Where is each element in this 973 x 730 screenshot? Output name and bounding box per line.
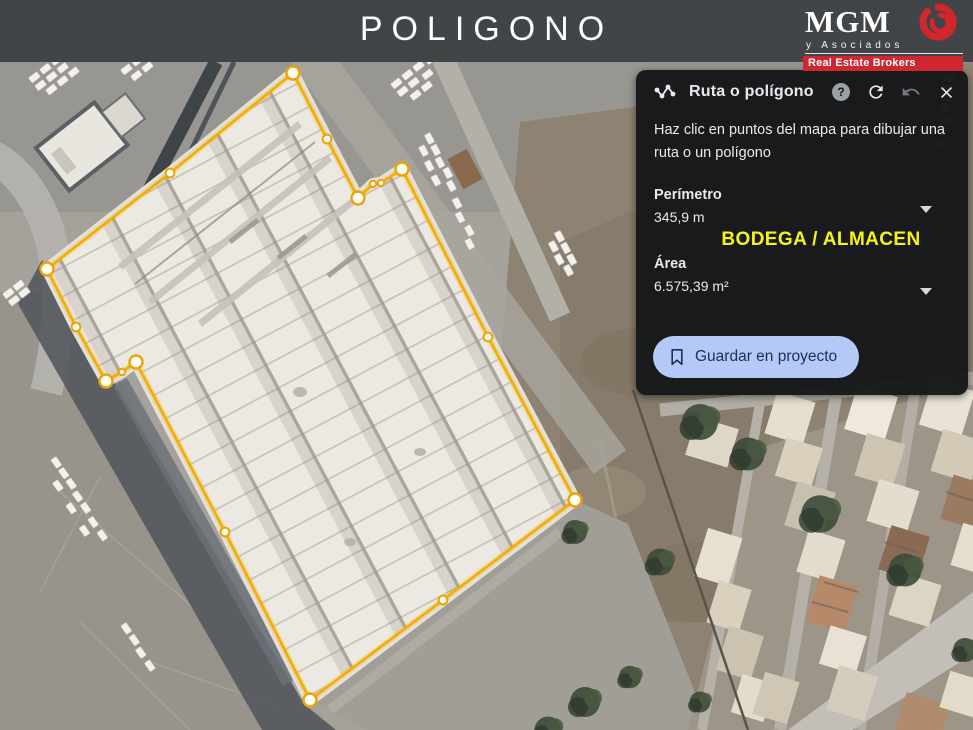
save-to-project-button[interactable]: Guardar en proyecto	[653, 336, 859, 378]
logo-swirl-icon	[919, 3, 957, 41]
help-icon[interactable]: ?	[831, 82, 851, 102]
perimeter-metric: Perímetro 345,9 m	[636, 187, 968, 225]
perimeter-value: 345,9 m	[654, 209, 950, 225]
chevron-down-icon[interactable]	[920, 288, 932, 295]
area-value: 6.575,39 m²	[654, 278, 950, 294]
polygon-vertex[interactable]	[166, 169, 175, 178]
close-icon[interactable]	[936, 82, 956, 102]
bookmark-icon	[669, 348, 685, 366]
undo-icon[interactable]	[901, 82, 921, 102]
chevron-down-icon[interactable]	[920, 206, 932, 213]
redo-icon[interactable]	[866, 82, 886, 102]
logo-wordmark: MGM	[805, 5, 891, 39]
area-metric: Área 6.575,39 m²	[636, 256, 968, 294]
polygon-vertex[interactable]	[304, 694, 317, 707]
polygon-vertex[interactable]	[130, 356, 143, 369]
panel-header: Ruta o polígono ?	[636, 70, 968, 102]
panel-title: Ruta o polígono	[689, 83, 816, 101]
polygon-vertex[interactable]	[484, 333, 493, 342]
polygon-vertex[interactable]	[569, 494, 582, 507]
measure-panel: Ruta o polígono ? Haz clic en puntos del…	[636, 70, 968, 395]
polygon-vertex[interactable]	[352, 192, 365, 205]
brand-logo: MGM y Asociados Real Estate Brokers	[803, 5, 963, 71]
logo-subtitle: y Asociados	[806, 40, 963, 51]
perimeter-label: Perímetro	[654, 187, 950, 203]
polygon-vertex[interactable]	[72, 323, 81, 332]
route-icon	[654, 83, 676, 101]
polygon-vertex[interactable]	[323, 135, 332, 144]
polygon-vertex[interactable]	[378, 180, 384, 186]
screenshot-root: POLIGONO MGM y Asociados Real Estate Bro…	[0, 0, 973, 730]
polygon-vertex[interactable]	[370, 181, 376, 187]
polygon-vertex[interactable]	[287, 67, 300, 80]
polygon-vertex[interactable]	[100, 375, 113, 388]
area-label: Área	[654, 256, 950, 272]
save-button-label: Guardar en proyecto	[695, 348, 837, 366]
polygon-vertex[interactable]	[439, 596, 448, 605]
polygon-vertex[interactable]	[221, 528, 230, 537]
logo-tagline: Real Estate Brokers	[803, 56, 963, 71]
panel-instructions: Haz clic en puntos del mapa para dibujar…	[636, 102, 968, 165]
polygon-vertex[interactable]	[119, 369, 125, 375]
logo-divider	[805, 53, 963, 54]
polygon-vertex[interactable]	[41, 263, 54, 276]
polygon-vertex[interactable]	[396, 163, 409, 176]
map-annotation: BODEGA / ALMACEN	[636, 229, 968, 251]
